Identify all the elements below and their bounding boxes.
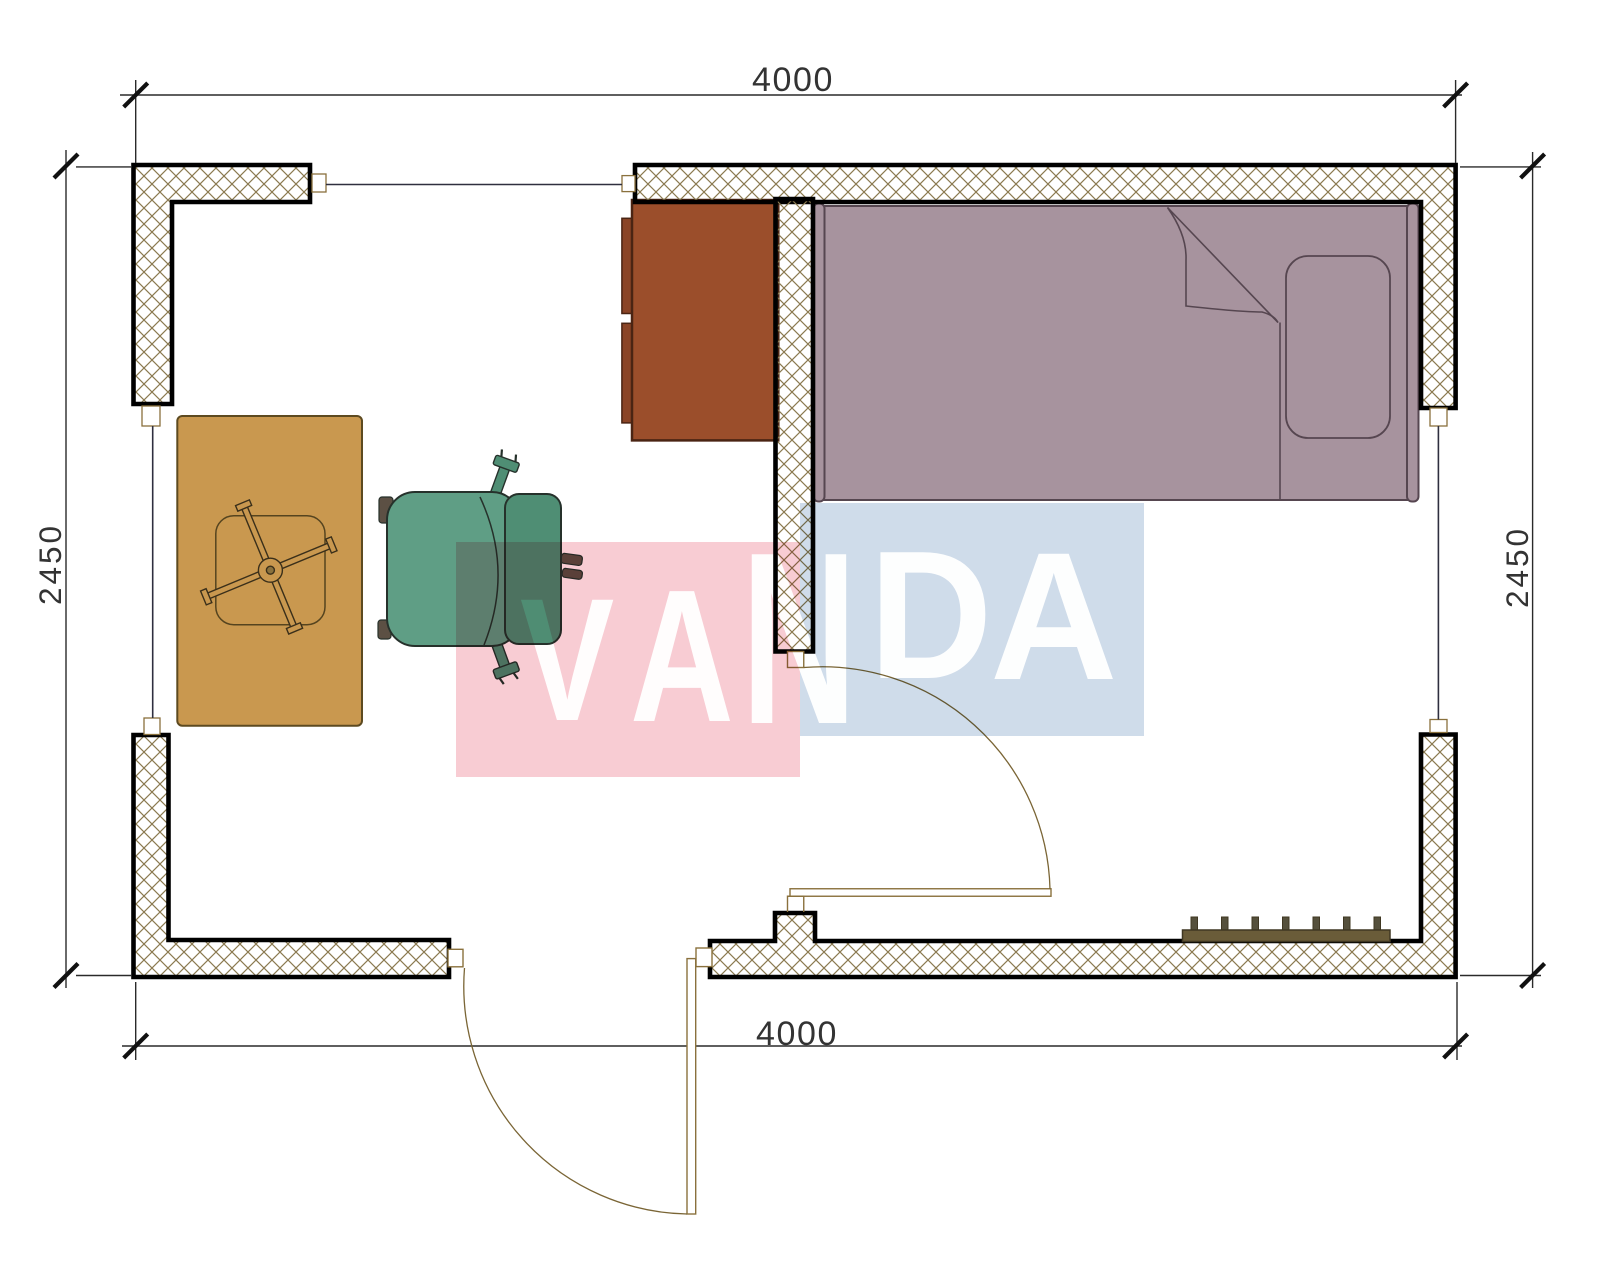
svg-text:2450: 2450 xyxy=(32,523,68,605)
svg-text:4000: 4000 xyxy=(752,61,834,99)
svg-text:2450: 2450 xyxy=(1499,526,1535,608)
svg-text:4000: 4000 xyxy=(756,1015,838,1053)
